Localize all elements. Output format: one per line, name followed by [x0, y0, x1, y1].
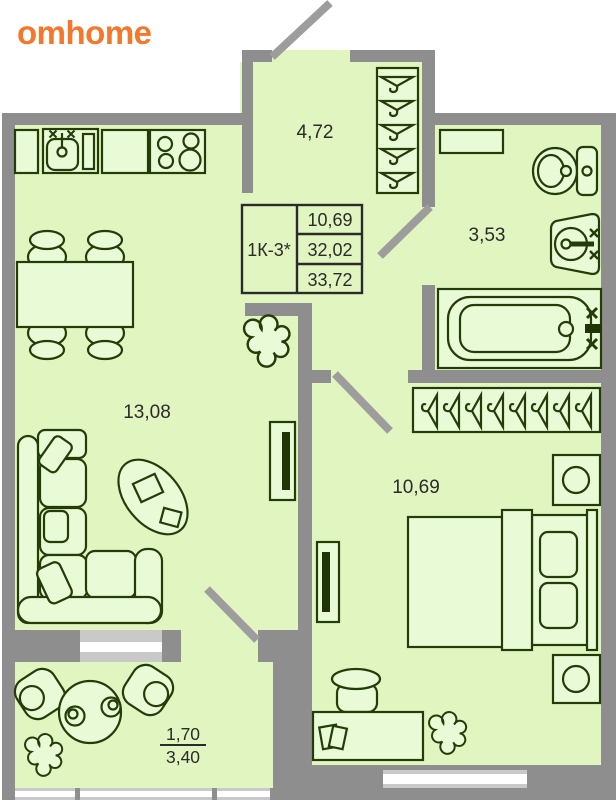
kitchen-drainer	[83, 134, 94, 169]
unit-info-table: 1К-3* 10,69 32,02 33,72	[242, 205, 362, 293]
balcony-window-mullion2	[212, 788, 217, 800]
area-row3: 33,72	[307, 270, 352, 290]
entrance-door-leaf	[272, 3, 330, 57]
dining-chair-back	[88, 341, 122, 359]
wall-balcony-corner	[258, 630, 312, 662]
tv-screen	[322, 552, 330, 612]
tv-screen	[282, 432, 290, 490]
kitchen-sink-drain	[58, 148, 67, 157]
sink-drain	[562, 240, 571, 249]
hallway-wardrobe	[377, 68, 418, 193]
balcony-window-glass	[15, 791, 270, 797]
bathtub-basin	[460, 305, 570, 352]
hallway-area-label: 4,72	[297, 122, 334, 143]
bedroom-area-label: 10,69	[392, 477, 440, 498]
area-row2: 32,02	[307, 240, 352, 260]
floor-plan: 1К-3* 10,69 32,02 33,72	[0, 0, 616, 800]
wall-hall-top-left	[253, 50, 272, 62]
bathroom-area-label: 3,53	[469, 225, 506, 246]
bed-blanket-fold	[502, 510, 532, 650]
bathtub	[438, 289, 601, 368]
bed-blanket	[408, 517, 503, 647]
sofa-pillow	[44, 511, 68, 542]
balcony-window-mullion	[75, 788, 80, 800]
wall-column	[273, 662, 312, 788]
area-row1: 10,69	[307, 210, 352, 230]
wall-kitchen-top	[2, 113, 253, 125]
bathroom-shelf	[440, 130, 503, 153]
tv-living	[270, 422, 295, 500]
bed-pillow	[540, 532, 577, 577]
wall-right	[601, 113, 616, 800]
cup-inner	[109, 701, 118, 710]
toilet-button	[583, 167, 592, 176]
wall-balcony-mid	[162, 630, 181, 662]
wall-bathroom-top	[435, 113, 616, 125]
kitchen-counter	[15, 129, 205, 173]
balcony-area-label: 1,70 3,40	[160, 724, 206, 767]
bathtub-drain	[559, 322, 573, 336]
wall-hall-right-upper	[422, 56, 435, 207]
dining-table	[17, 262, 133, 327]
dining-chair-back	[88, 231, 122, 249]
sofa-cushion	[86, 551, 136, 598]
nightstand-box	[553, 655, 600, 703]
wall-bathroom-bottom	[408, 370, 616, 383]
kitchen-worktop	[102, 130, 148, 173]
nightstand-bottom	[553, 655, 600, 703]
tv-bedroom	[317, 542, 339, 622]
entrance-opening	[272, 50, 350, 62]
bed-headboard	[587, 510, 597, 650]
bed	[408, 510, 597, 650]
desk-item	[329, 726, 347, 749]
sofa-back	[18, 436, 38, 623]
dining-chair-back	[30, 231, 64, 249]
kitchen-cabinet	[15, 130, 38, 173]
nightstand-box	[553, 455, 600, 505]
wall-entrance-vertical	[242, 50, 253, 193]
balcony-area-upper: 1,70	[166, 724, 200, 744]
cup-inner	[69, 710, 78, 719]
living-area-label: 13,08	[123, 402, 171, 423]
balcony-inner-window-glass	[80, 642, 162, 652]
desk-chair-back	[332, 669, 380, 689]
bathtub-faucet	[585, 324, 601, 333]
wardrobe-box	[413, 388, 600, 432]
nightstand-top	[553, 455, 600, 505]
balcony-area-lower: 3,40	[166, 747, 200, 767]
floor-plan-page: omhome	[0, 0, 616, 800]
wall-bathroom-left-lower	[422, 285, 435, 382]
unit-type-label: 1К-3*	[247, 240, 291, 260]
bathroom-sink	[551, 214, 599, 274]
dining-chair-back	[30, 341, 64, 359]
wall-left	[2, 113, 15, 800]
sofa-front	[18, 597, 161, 623]
bedroom-wardrobe	[413, 388, 600, 432]
toilet	[533, 147, 597, 195]
coffee-table-item	[160, 508, 181, 527]
toilet-detail	[561, 166, 571, 176]
bedroom-window-glass	[383, 774, 527, 784]
wall-balcony-left	[2, 630, 80, 662]
bed-pillow	[540, 583, 577, 628]
